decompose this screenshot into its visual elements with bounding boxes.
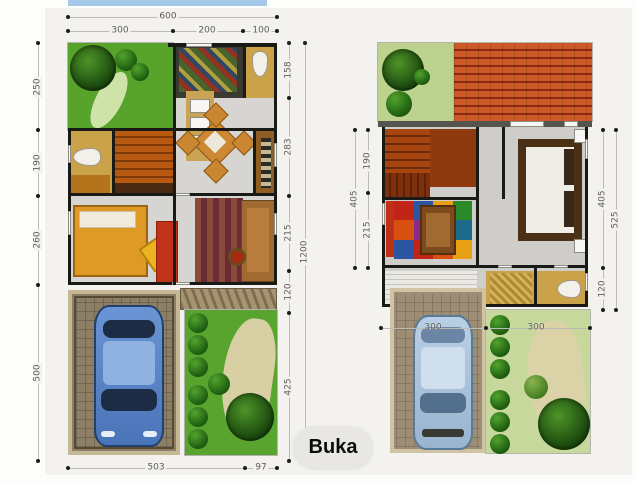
window xyxy=(382,203,385,225)
wall xyxy=(502,127,505,199)
dim-dot xyxy=(66,466,70,470)
dim-label: 283 xyxy=(285,136,294,157)
dim-dot xyxy=(36,283,40,287)
dim-dot xyxy=(601,308,605,312)
dim-label: 300 xyxy=(422,324,443,333)
bush-icon xyxy=(131,63,149,81)
bush-icon xyxy=(188,429,208,449)
dim-dot xyxy=(366,128,370,132)
bush-icon xyxy=(188,357,208,377)
car-top-view xyxy=(94,305,164,447)
wall xyxy=(173,130,176,196)
dim-label: 1200 xyxy=(301,239,310,266)
dim-label: 300 xyxy=(525,324,546,333)
dim-label: 405 xyxy=(351,188,360,209)
bush-icon xyxy=(208,373,230,395)
car-windshield xyxy=(101,389,157,411)
wall xyxy=(534,268,537,307)
dim-dot xyxy=(36,459,40,463)
bush-icon xyxy=(490,337,510,357)
door-gap xyxy=(498,265,512,268)
open-button[interactable]: Buka xyxy=(293,426,373,468)
sofa-cushions xyxy=(247,208,269,272)
bush-icon xyxy=(490,359,510,379)
dim-label: 120 xyxy=(285,281,294,302)
window xyxy=(68,145,71,163)
dim-dot xyxy=(287,269,291,273)
screenshot-root: 600 300 200 100 250 190 260 500 158 283 … xyxy=(0,0,636,483)
dim-dot xyxy=(275,466,279,470)
bush-icon xyxy=(490,390,510,410)
round-table xyxy=(228,248,246,266)
living-rug xyxy=(195,198,243,282)
dim-label: 200 xyxy=(196,27,217,36)
dim-dot xyxy=(601,266,605,270)
bush-icon xyxy=(490,412,510,432)
dim-label: 100 xyxy=(250,27,271,36)
pillow xyxy=(564,149,574,185)
stair-arm xyxy=(384,173,430,199)
dim-label: 190 xyxy=(34,152,43,173)
dim-dot xyxy=(303,41,307,45)
pillow xyxy=(564,191,574,227)
wall xyxy=(253,130,256,196)
dim-dot xyxy=(275,15,279,19)
car-top-view xyxy=(413,315,473,450)
dim-label: 260 xyxy=(34,229,43,250)
bush-icon xyxy=(386,91,412,117)
dim-dot xyxy=(171,29,175,33)
door-gap xyxy=(554,265,568,268)
window xyxy=(585,273,588,291)
dim-dot xyxy=(66,29,70,33)
rug-patch xyxy=(394,220,414,239)
window xyxy=(186,43,212,47)
second-floor-plan xyxy=(378,43,592,455)
wall xyxy=(168,43,277,47)
bush-icon xyxy=(490,315,510,335)
dim-dot xyxy=(287,459,291,463)
car-roof xyxy=(421,347,465,389)
roof-tile-joints xyxy=(454,43,592,121)
wardrobe-red xyxy=(386,201,394,257)
dim-label: 190 xyxy=(364,150,373,171)
pillow xyxy=(79,211,136,228)
dim-label: 158 xyxy=(285,59,294,80)
dim-label: 215 xyxy=(364,219,373,240)
dim-label: 425 xyxy=(285,376,294,397)
dim-dot xyxy=(36,41,40,45)
rug-patch xyxy=(394,201,414,220)
dim-label: 215 xyxy=(285,222,294,243)
dim-label: 405 xyxy=(599,188,608,209)
dim-label: 500 xyxy=(34,362,43,383)
dim-dot xyxy=(353,266,357,270)
window xyxy=(274,213,277,235)
dim-label: 525 xyxy=(612,209,621,230)
kitchen-items xyxy=(179,48,237,92)
dim-dot xyxy=(66,15,70,19)
window xyxy=(274,143,277,167)
dim-dot xyxy=(601,128,605,132)
wall xyxy=(173,43,176,131)
dim-dot xyxy=(36,194,40,198)
window xyxy=(68,211,71,235)
car-roof xyxy=(103,341,155,385)
car-dashboard xyxy=(422,429,464,437)
car-headlight xyxy=(101,431,115,437)
dim-label: 600 xyxy=(157,13,178,22)
wall xyxy=(173,193,176,285)
dim-label: 503 xyxy=(145,464,166,473)
car-windshield xyxy=(420,393,466,413)
stair-landing xyxy=(430,129,476,187)
dim-dot xyxy=(243,466,247,470)
dim-dot xyxy=(287,96,291,100)
bush-icon xyxy=(524,375,548,399)
car-headlight xyxy=(143,431,157,437)
tree-icon xyxy=(70,45,116,91)
dim-label: 97 xyxy=(253,464,268,473)
dim-dot xyxy=(36,128,40,132)
top-blue-bar xyxy=(68,0,267,6)
dim-label: 300 xyxy=(109,27,130,36)
door-gap xyxy=(174,193,190,196)
grille-window xyxy=(261,138,271,188)
rug-patch xyxy=(394,240,414,259)
bush-icon xyxy=(188,385,208,405)
dim-line xyxy=(38,43,39,461)
dim-dot xyxy=(287,41,291,45)
wall xyxy=(112,130,115,196)
dim-dot xyxy=(614,308,618,312)
wall xyxy=(476,127,479,267)
dim-dot xyxy=(275,29,279,33)
dim-dot xyxy=(484,326,488,330)
dim-label: 120 xyxy=(599,278,608,299)
vanity xyxy=(70,175,110,193)
dim-dot xyxy=(366,266,370,270)
wall xyxy=(243,43,246,98)
terrace-path xyxy=(180,288,277,310)
bush-icon xyxy=(188,335,208,355)
dim-label: 250 xyxy=(34,76,43,97)
wall xyxy=(384,197,476,200)
dim-dot xyxy=(353,128,357,132)
first-floor-plan xyxy=(68,43,277,461)
dim-line xyxy=(289,43,290,461)
bush-icon xyxy=(414,69,430,85)
car-rear-window xyxy=(103,320,155,338)
window xyxy=(585,139,588,159)
toilet-icon xyxy=(73,148,101,166)
dim-dot xyxy=(379,326,383,330)
toilet-icon xyxy=(557,280,581,298)
dim-dot xyxy=(241,29,245,33)
bush-icon xyxy=(188,407,208,427)
bed-blanket xyxy=(426,213,450,247)
dim-dot xyxy=(366,191,370,195)
dim-dot xyxy=(287,194,291,198)
bush-icon xyxy=(490,434,510,454)
dim-dot xyxy=(588,326,592,330)
shower-tiles xyxy=(490,273,532,305)
dim-dot xyxy=(614,128,618,132)
tree-icon xyxy=(538,398,590,450)
tree-icon xyxy=(226,393,274,441)
bush-icon xyxy=(188,313,208,333)
dim-dot xyxy=(287,311,291,315)
